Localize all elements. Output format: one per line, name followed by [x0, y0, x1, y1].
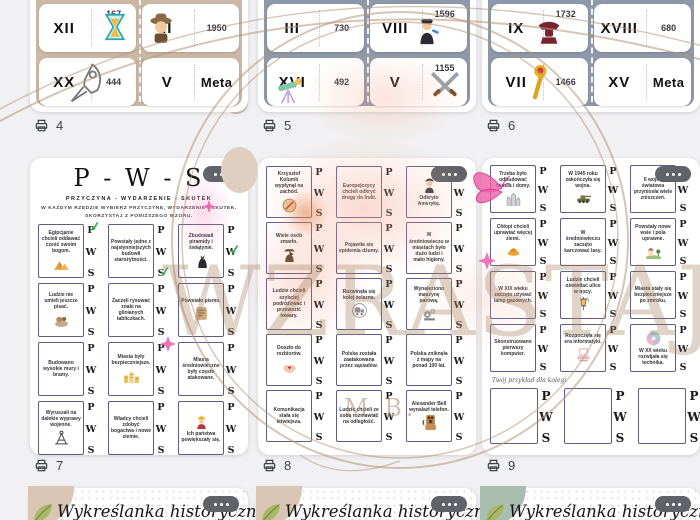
pws-letter: P: [157, 225, 164, 236]
pws-letter: S: [680, 256, 687, 267]
pws-letter: S: [88, 327, 95, 338]
domino-panel: III730VIII1596XVI492V1155: [264, 0, 470, 106]
pws-worksheet-card[interactable]: Trzeba było odbudować miasta i domy.PWSW…: [482, 158, 700, 455]
pws-row: Wiele osób zmarło.PWSPojawiła się epidem…: [266, 222, 472, 276]
pws-letter: P: [315, 167, 322, 178]
page-label: 4: [34, 118, 63, 133]
pws-letter: W: [687, 410, 700, 424]
pws-cell-text: Rozpoczęła się era informatyki.: [563, 333, 603, 346]
pws-letter: P: [679, 219, 686, 230]
pws-letter: S: [386, 264, 393, 275]
pws-letter: S: [158, 445, 165, 456]
pws-letters: PWS: [224, 342, 238, 398]
pws-cell: Budowano wysokie mury i bramy.: [38, 342, 84, 396]
pws-letter: S: [386, 320, 393, 331]
pws-cell-text: Polska zniknęła z mapy na ponad 100 lat.: [409, 351, 449, 370]
pws-letter: W: [454, 188, 465, 199]
pws-letter: W: [314, 412, 325, 423]
pws-letter: P: [315, 279, 322, 290]
pws-cell: Ludzie chcieli szybciej podróżować i prz…: [266, 278, 312, 330]
pws-cell-text: Miasta były bezpieczniejsze.: [111, 354, 151, 367]
pws-cell: Ludzie chcieli ze sobą rozmawiać na odle…: [336, 390, 382, 442]
roman-numeral: VIII: [370, 4, 420, 52]
pws-letter: S: [386, 376, 393, 387]
pws-letter: P: [385, 223, 392, 234]
pws-cell-group: Wiele osób zmarło.PWS: [266, 222, 326, 276]
pws-letter: W: [86, 306, 97, 317]
pws-letter: S: [610, 362, 617, 373]
pws-cell-group: Powstały nowe wsie i pola uprawne.PWS: [630, 218, 690, 268]
pws-letter: W: [454, 244, 465, 255]
pws-letter: W: [678, 185, 689, 196]
pws-letter: P: [227, 284, 234, 295]
pws-letter: P: [679, 272, 686, 283]
green-checkmark: ✓: [159, 264, 172, 280]
printer-icon[interactable]: [34, 118, 49, 133]
page-number: 5: [284, 118, 291, 133]
menu-dot: [678, 173, 681, 176]
menu-dot: [448, 503, 451, 506]
pws-letter: S: [316, 208, 323, 219]
tile-value: 167: [91, 4, 136, 52]
old-telephone-icon: [421, 414, 438, 431]
pws-letter: W: [86, 247, 97, 258]
pws-letters: PWS: [154, 342, 168, 398]
pws-cell-text: Powstały nowe wsie i pola uprawne.: [633, 224, 673, 243]
pws-letter: W: [613, 410, 626, 424]
pws-letters: PWS: [84, 283, 98, 339]
pws-cell: Pojawiła się epidemia dżumy.: [336, 222, 382, 274]
panel-dashed-divider: [139, 0, 141, 102]
pws-cell-text: Ludzie chcieli ze sobą rozmawiać na odle…: [339, 407, 379, 426]
pws-row: Egipcjanie chcieli oddawać cześć swoim b…: [38, 224, 244, 280]
pws-letter: W: [156, 306, 167, 317]
pws-letters: PWS: [312, 166, 326, 220]
pws-letter: W: [454, 356, 465, 367]
pws-letter: P: [615, 389, 624, 403]
pws-letter: P: [315, 335, 322, 346]
pws-cell: Polska zniknęła z mapy na ponad 100 lat.: [406, 334, 452, 386]
menu-dot: [454, 503, 457, 506]
pws-letter: P: [157, 343, 164, 354]
pws-letters: PWS: [312, 334, 326, 388]
pws-cell-group: Alexander Bell wynalazł telefon.PWS: [406, 390, 466, 444]
pws-letters: PWS: [606, 324, 620, 374]
pws-letter: W: [538, 344, 549, 355]
domino-panel: XII167II1950XX444VMeta: [36, 0, 242, 106]
card-menu-button[interactable]: [431, 496, 467, 512]
pws-cell-group: PWS: [638, 388, 700, 446]
pws-letter: P: [455, 335, 462, 346]
pws-cell: Miasta były bezpieczniejsze.: [108, 342, 154, 396]
instruction-line: W KAŻDYM RZĘDZIE WYBIERZ PRZYCZYNĘ, WYDA…: [41, 206, 237, 211]
pws-worksheet-card[interactable]: P - W - SPRZYCZYNA - WYDARZENIE - SKUTEK…: [30, 158, 248, 455]
pws-letter: W: [608, 238, 619, 249]
pws-cell: W XX wieku rozwijała się technika.: [630, 324, 676, 372]
pws-cell: Powstały nowe wsie i pola uprawne.: [630, 218, 676, 266]
pws-letter: S: [540, 309, 547, 320]
pws-row: W XIX wieku zaczęto używać lamp gazowych…: [490, 271, 696, 321]
pws-letter: S: [316, 376, 323, 387]
pws-letter: W: [608, 344, 619, 355]
domino-worksheet-card[interactable]: XII167II1950XX444VMeta: [30, 0, 248, 112]
pws-cell-group: Komunikacja stała się łatwiejsza.PWS: [266, 390, 326, 444]
pws-letter: S: [316, 264, 323, 275]
pws-letter: P: [455, 279, 462, 290]
pws-cell: Alexander Bell wynalazł telefon.: [406, 390, 452, 442]
clay-icon: [53, 311, 70, 328]
ruins-icon: [505, 190, 522, 207]
printer-icon[interactable]: [486, 118, 501, 133]
pws-cell-text: Wynaleziono maszynę parową.: [409, 286, 449, 305]
printer-icon[interactable]: [262, 458, 277, 473]
pws-cell: Skonstruowano pierwszy komputer.: [490, 324, 536, 372]
pws-cell-text: W średniowieczu zaczęto karczować lasy.: [563, 230, 603, 255]
pws-cell-text: W średniowieczu w miastach było dużo lud…: [409, 232, 449, 263]
pws-letter: P: [689, 389, 698, 403]
wordsearch-worksheet-card[interactable]: Wykreślanka historyczna: [258, 488, 476, 520]
pws-letter: S: [316, 320, 323, 331]
pws-cell: Rozpoczęła się era informatyki.: [560, 324, 606, 372]
pws-letter: P: [539, 166, 546, 177]
pws-cell-text: Egipcjanie chcieli oddawać cześć swoim b…: [41, 230, 81, 255]
pws-cell-group: Rozpoczęła się era informatyki.PWS: [560, 324, 620, 374]
pws-letters: PWS: [154, 401, 168, 457]
pws-cell-group: Rozwinęła się kolej żelazna.PWS: [336, 278, 396, 332]
farmer-hat-icon: [505, 243, 522, 260]
leaf-icon: [259, 501, 283, 520]
pws-letters: PWS: [154, 283, 168, 339]
panel-dashed-divider: [591, 0, 593, 102]
pws-row: Budowano wysokie mury i bramy.PWSMiasta …: [38, 342, 244, 398]
pws-cell-text: Ludzie nie umieli jeszcze pisać.: [41, 292, 81, 311]
domino-tile: III730: [267, 4, 364, 52]
pws-empty-cell[interactable]: [490, 388, 538, 444]
pws-letter: W: [156, 247, 167, 258]
pws-letters: PWS: [676, 324, 690, 374]
pws-cell: Ich państwa powiększały się.: [178, 401, 224, 455]
pws-cell-group: PWS: [490, 388, 554, 446]
card-menu-button[interactable]: [655, 166, 691, 182]
pws-letter: W: [86, 365, 97, 376]
pws-letter: P: [609, 272, 616, 283]
pws-cell-text: Władcy chcieli zdobyć bogactwa i nowe zi…: [111, 416, 151, 441]
pws-letter: S: [88, 386, 95, 397]
pws-letter: W: [226, 365, 237, 376]
pws-cell-text: Budowano wysokie mury i bramy.: [41, 360, 81, 379]
pws-letters: PWS: [452, 390, 466, 444]
pws-letter: W: [314, 188, 325, 199]
roman-numeral: VII: [491, 58, 541, 106]
printer-icon[interactable]: [486, 458, 501, 473]
menu-dot: [226, 503, 229, 506]
pws-letter: W: [86, 424, 97, 435]
wordsearch-worksheet-card[interactable]: Wykreślanka historyczna: [30, 488, 248, 520]
domino-tile: VII1466: [491, 58, 588, 106]
cat-statue-icon: [193, 252, 210, 269]
pws-letter: W: [226, 424, 237, 435]
pws-cell: Powstało pismo.: [178, 283, 224, 337]
tile-value: 680: [646, 4, 691, 52]
steam-train-icon: [351, 302, 368, 319]
pws-letters: PWS✓: [84, 224, 98, 280]
pws-cell-text: Powstało pismo.: [181, 298, 220, 304]
pws-letter: P: [385, 391, 392, 402]
pws-letter: P: [87, 343, 94, 354]
pws-letter: P: [539, 272, 546, 283]
pws-letter: W: [384, 300, 395, 311]
pws-letter: W: [314, 300, 325, 311]
pws-cell-text: Doszło do rozbiorów.: [269, 345, 309, 358]
pws-letter: W: [454, 412, 465, 423]
pws-letter: W: [384, 188, 395, 199]
menu-dot: [454, 173, 457, 176]
pws-letter: P: [227, 343, 234, 354]
pws-letters: PWS: [452, 222, 466, 276]
pws-cell-text: Wyruszali na dalekie wyprawy wojenne.: [41, 410, 81, 429]
pws-letters: PWS: [536, 324, 550, 374]
card-menu-button[interactable]: [431, 166, 467, 182]
pws-empty-cell[interactable]: [564, 388, 612, 444]
pws-letter: W: [538, 185, 549, 196]
pws-letters: PWS: [312, 222, 326, 276]
wordsearch-worksheet-card[interactable]: Wykreślanka historyczna: [482, 488, 700, 520]
printer-icon[interactable]: [262, 118, 277, 133]
pws-cell-text: Zaczęli rysować znaki na glinianych tabl…: [111, 298, 151, 323]
pws-cell: Komunikacja stała się łatwiejsza.: [266, 390, 312, 442]
steam-engine-icon: [421, 305, 438, 322]
pws-letter: P: [87, 402, 94, 413]
meta-label: Meta: [194, 58, 239, 106]
pws-letter: P: [87, 284, 94, 295]
pws-cell: Egipcjanie chcieli oddawać cześć swoim b…: [38, 224, 84, 278]
pws-letter: W: [539, 410, 552, 424]
leaf-icon: [483, 501, 507, 520]
king-icon: [193, 413, 210, 430]
pws-cell: W 1945 roku zakończyła się wojna.: [560, 165, 606, 213]
pws-cell-group: Władcy chcieli zdobyć bogactwa i nowe zi…: [108, 401, 168, 457]
pws-letters: PWS: [382, 334, 396, 388]
cd-icon: [645, 330, 662, 347]
pws-letter: W: [226, 306, 237, 317]
pws-letter: S: [610, 309, 617, 320]
pws-letter: S: [540, 362, 547, 373]
pws-letter: W: [384, 412, 395, 423]
page-number: 9: [508, 458, 515, 473]
pws-cell-group: Wyruszali na dalekie wyprawy wojenne.PWS: [38, 401, 98, 457]
pws-letter: W: [678, 344, 689, 355]
green-checkmark: ✓: [89, 219, 102, 235]
pws-letter: S: [88, 268, 95, 279]
domino-tile: XVMeta: [594, 58, 691, 106]
pws-card-instructions: W KAŻDYM RZĘDZIE WYBIERZ PRZYCZYNĘ, WYDA…: [40, 205, 238, 220]
pws-cell-text: Ich państwa powiększały się.: [181, 431, 221, 444]
pws-letters: PWS: [676, 271, 690, 321]
pws-letter: P: [157, 284, 164, 295]
menu-dot: [672, 503, 675, 506]
worksheet-gallery: WZRASTAJ M.B. XII167II1950XX444VMeta4III…: [0, 0, 700, 520]
menu-dot: [666, 173, 669, 176]
roman-numeral: XVI: [267, 58, 317, 106]
domino-tile: VMeta: [142, 58, 239, 106]
pws-letters: PWS: [536, 165, 550, 215]
city-icon: [123, 367, 140, 384]
pws-cell-group: W XX wieku rozwijała się technika.PWS: [630, 324, 690, 374]
pws-cell-group: Polska zniknęła z mapy na ponad 100 lat.…: [406, 334, 466, 388]
pws-letter: S: [316, 432, 323, 443]
pws-row: Skonstruowano pierwszy komputer.PWSRozpo…: [490, 324, 696, 374]
pws-cell-group: Ludzie chcieli oświetlać ulice w nocy.PW…: [560, 271, 620, 321]
tank-icon: [575, 190, 592, 207]
domino-worksheet-card[interactable]: III730VIII1596XVI492V1155: [258, 0, 476, 112]
pws-cell: Polska została zaatakowana przez sąsiadó…: [336, 334, 382, 386]
pws-letter: P: [385, 279, 392, 290]
domino-tile: XX444: [39, 58, 136, 106]
pws-cell-group: Krzysztof Kolumb wypłynął na zachód.PWS: [266, 166, 326, 220]
pws-letter: S: [610, 203, 617, 214]
pws-letters: PWS: [536, 218, 550, 268]
pws-letter: S: [680, 203, 687, 214]
pyramids-icon: [53, 256, 70, 273]
domino-tile: IX1732: [491, 4, 588, 52]
roman-numeral: XVIII: [594, 4, 644, 52]
pws-cell-text: Europejczycy chcieli odkryć drogę do Ind…: [339, 183, 379, 202]
pws-cell-text: Miasta średniowieczne były często atakow…: [181, 357, 221, 382]
pws-cell-text: W 1945 roku zakończyła się wojna.: [563, 171, 603, 190]
roman-numeral: V: [370, 58, 420, 106]
pws-cell: W średniowieczu w miastach było dużo lud…: [406, 222, 452, 274]
pws-letter: P: [227, 402, 234, 413]
tile-value: 1596: [422, 4, 467, 52]
pws-letter: S: [88, 445, 95, 456]
pws-cell-group: Ludzie chcieli ze sobą rozmawiać na odle…: [336, 390, 396, 444]
leaf-icon: [31, 501, 55, 520]
pws-letter: S: [690, 431, 699, 445]
pws-letter: W: [156, 365, 167, 376]
pws-cell-group: Trzeba było odbudować miasta i domy.PWS: [490, 165, 550, 215]
pws-cell: Trzeba było odbudować miasta i domy.: [490, 165, 536, 213]
pws-cell-text: Trzeba było odbudować miasta i domy.: [493, 171, 533, 190]
menu-dot: [442, 503, 445, 506]
pws-cell-group: Chłopi chcieli uprawiać więcej ziemi.PWS: [490, 218, 550, 268]
tile-value: 1155: [422, 58, 467, 106]
pws-cell-text: Powstały jedne z najsłynniejszych budowl…: [111, 239, 151, 264]
pws-letter: W: [156, 424, 167, 435]
pws-letter: S: [228, 268, 235, 279]
pws-cell: Chłopi chcieli uprawiać więcej ziemi.: [490, 218, 536, 266]
roman-numeral: XII: [39, 4, 89, 52]
page-label: 5: [262, 118, 291, 133]
card-menu-button[interactable]: [655, 496, 691, 512]
pws-letter: S: [610, 256, 617, 267]
pws-letters: PWS: [452, 278, 466, 332]
pws-letter: P: [539, 325, 546, 336]
domino-tile: XVIII680: [594, 4, 691, 52]
domino-tile: VIII1596: [370, 4, 467, 52]
domino-worksheet-card[interactable]: IX1732XVIII680VII1466XVMeta: [482, 0, 700, 112]
tile-value: 1732: [543, 4, 588, 52]
hands-icon: [281, 358, 298, 375]
pws-cell-group: Powstało pismo.PWS: [178, 283, 238, 339]
pws-cell: W XIX wieku zaczęto używać lamp gazowych…: [490, 271, 536, 319]
pws-letters: PWS: [382, 222, 396, 276]
pws-cell-text: W XX wieku rozwijała się technika.: [633, 348, 673, 367]
pws-letter: P: [539, 219, 546, 230]
pws-letter: W: [314, 244, 325, 255]
pws-cell-group: Ich państwa powiększały się.PWS: [178, 401, 238, 457]
pws-letter: S: [228, 327, 235, 338]
pws-cell: Ludzie chcieli oświetlać ulice w nocy.: [560, 271, 606, 319]
pws-cell-group: Ludzie chcieli szybciej podróżować i prz…: [266, 278, 326, 332]
pws-letter: W: [538, 291, 549, 302]
pws-cell: Miasta stały się bezpieczniejsze po zmro…: [630, 271, 676, 319]
pws-letters: PWS: [606, 165, 620, 215]
menu-dot: [678, 503, 681, 506]
menu-dot: [666, 503, 669, 506]
printer-icon[interactable]: [34, 458, 49, 473]
pws-cell: W średniowieczu zaczęto karczować lasy.: [560, 218, 606, 266]
pws-row: Ludzie chcieli szybciej podróżować i prz…: [266, 278, 472, 332]
menu-dot: [226, 173, 229, 176]
pws-letter: S: [456, 320, 463, 331]
pws-cell-group: Skonstruowano pierwszy komputer.PWS: [490, 324, 550, 374]
pws-letters: PWS: [686, 388, 700, 446]
pws-letter: W: [314, 356, 325, 367]
pws-letters: PWS: [606, 218, 620, 268]
village-icon: [645, 243, 662, 260]
tile-value: 730: [319, 4, 364, 52]
page-label: 8: [262, 458, 291, 473]
pws-row: Chłopi chcieli uprawiać więcej ziemi.PWS…: [490, 218, 696, 268]
pws-letter: S: [456, 432, 463, 443]
pws-cell: Rozwinęła się kolej żelazna.: [336, 278, 382, 330]
pws-letters: PWS: [312, 390, 326, 444]
pws-letter: P: [679, 325, 686, 336]
pws-cell-group: Miasta średniowieczne były często atakow…: [178, 342, 238, 398]
pws-letters: PWS: [224, 401, 238, 457]
pws-worksheet-card[interactable]: Krzysztof Kolumb wypłynął na zachód.PWSE…: [258, 158, 476, 455]
pws-letter: W: [384, 356, 395, 367]
card-menu-button[interactable]: [203, 496, 239, 512]
pws-letters: PWS✓: [224, 224, 238, 280]
instruction-line: SKORZYSTAJ Z PONIŻSZEGO WZORU.: [85, 214, 193, 219]
pws-letter: S: [456, 264, 463, 275]
tile-value: 492: [319, 58, 364, 106]
pws-letters: PWS: [84, 401, 98, 457]
clay-tablet-icon: [193, 305, 210, 322]
pws-cell-group: Miasta były bezpieczniejsze.PWS: [108, 342, 168, 398]
pws-letter: S: [680, 309, 687, 320]
pws-letters: PWS: [382, 278, 396, 332]
pws-empty-cell[interactable]: [638, 388, 686, 444]
pws-cell-group: Wynaleziono maszynę parową.PWS: [406, 278, 466, 332]
compass-icon: [281, 197, 298, 214]
pws-letters: PWS: [676, 218, 690, 268]
card-menu-button[interactable]: [203, 166, 239, 182]
pws-cell: Wynaleziono maszynę parową.: [406, 278, 452, 330]
pws-cell-text: Ludzie chcieli szybciej podróżować i prz…: [269, 288, 309, 319]
pws-letter: P: [455, 391, 462, 402]
pws-cell-text: Polska została zaatakowana przez sąsiadó…: [339, 351, 379, 370]
pws-cell-text: Wiele osób zmarło.: [269, 233, 309, 246]
pws-letter: P: [315, 223, 322, 234]
roman-numeral: XX: [39, 58, 89, 106]
domino-tile: XII167: [39, 4, 136, 52]
tile-value: 444: [91, 58, 136, 106]
pws-letter: W: [538, 238, 549, 249]
page-label: 9: [486, 458, 515, 473]
pws-cell: Zaczęli rysować znaki na glinianych tabl…: [108, 283, 154, 337]
